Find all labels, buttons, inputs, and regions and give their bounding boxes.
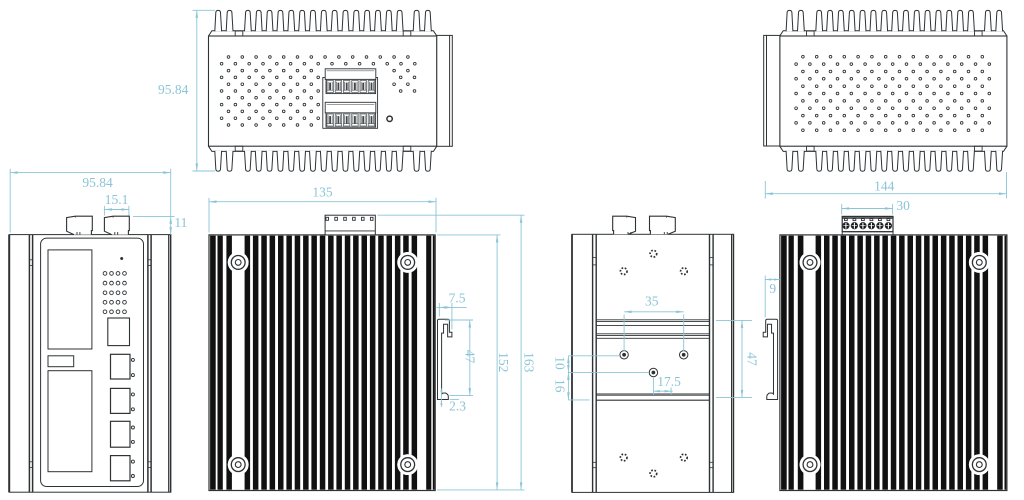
svg-text:16: 16 (552, 379, 567, 393)
svg-text:30: 30 (896, 198, 910, 213)
svg-text:95.84: 95.84 (82, 175, 113, 190)
svg-text:35: 35 (645, 293, 659, 308)
svg-text:7.5: 7.5 (449, 291, 466, 306)
svg-text:144: 144 (874, 178, 895, 193)
svg-text:135: 135 (312, 184, 333, 199)
svg-text:95.84: 95.84 (158, 82, 189, 97)
svg-text:47: 47 (745, 352, 760, 366)
svg-text:11: 11 (174, 215, 187, 230)
svg-text:9: 9 (769, 281, 776, 296)
svg-text:10: 10 (553, 356, 568, 370)
svg-text:163: 163 (522, 352, 537, 373)
svg-text:47: 47 (462, 350, 477, 364)
svg-text:2.3: 2.3 (449, 398, 466, 413)
svg-text:15.1: 15.1 (105, 192, 129, 207)
svg-text:17.5: 17.5 (657, 374, 681, 389)
svg-text:152: 152 (496, 352, 511, 372)
